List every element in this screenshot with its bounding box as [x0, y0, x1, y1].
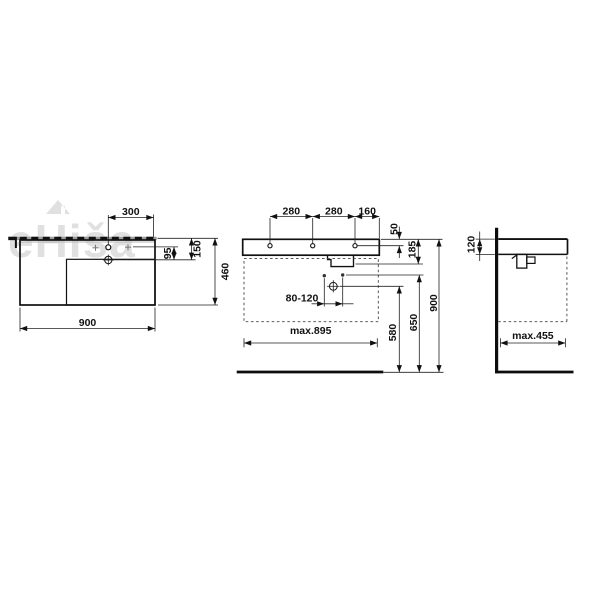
- dim-label-650: 650: [408, 314, 420, 332]
- dim-label-150: 150: [192, 240, 204, 258]
- dim-label-460: 460: [220, 263, 232, 281]
- dim-label-95: 95: [162, 247, 174, 259]
- washbasin-dimension-drawing: eHiša 300: [0, 0, 600, 600]
- dim-label-900-width: 900: [79, 317, 97, 329]
- dim-label-max455: max.455: [512, 330, 554, 342]
- mounting-dot-left: [323, 274, 326, 277]
- dim-label-80-120: 80-120: [286, 292, 319, 304]
- dim-label-280-left: 280: [283, 205, 301, 217]
- dim-label-120: 120: [466, 236, 478, 254]
- technical-drawing-page: eHiša 300: [0, 0, 600, 600]
- dim-label-280-right: 280: [325, 205, 343, 217]
- dim-label-max895: max.895: [290, 325, 332, 337]
- mounting-dot-right: [341, 273, 344, 276]
- dim-label-185: 185: [407, 241, 419, 259]
- dim-label-900-height: 900: [428, 294, 440, 312]
- dim-label-160: 160: [358, 205, 376, 217]
- dim-label-300: 300: [122, 206, 140, 218]
- dim-label-50: 50: [389, 223, 401, 235]
- dim-label-580: 580: [387, 324, 399, 342]
